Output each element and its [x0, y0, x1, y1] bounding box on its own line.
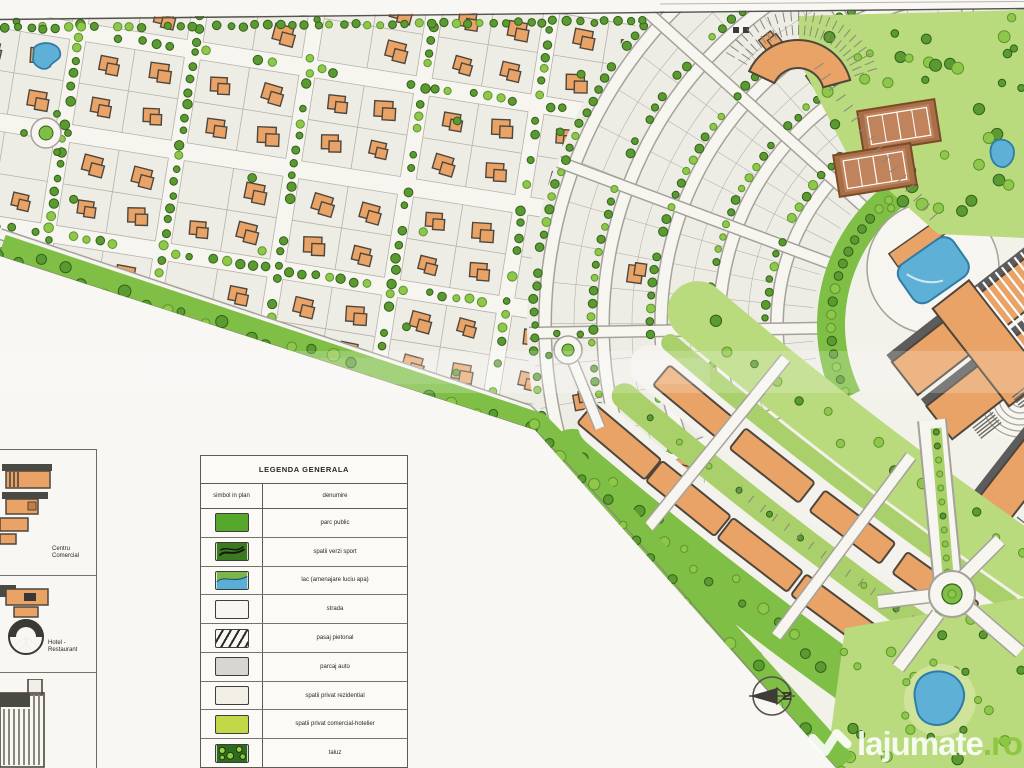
- legend-col-name: denumire: [263, 484, 407, 508]
- swatch-lac: [215, 571, 249, 590]
- legend-row-rezidential: spatii privat rezidential: [201, 682, 407, 711]
- legend-row-comercial: spatii privat comercial-hotelier: [201, 710, 407, 739]
- compass-north-label: N: [780, 691, 795, 700]
- panel-item-building: [0, 673, 96, 767]
- swatch-parcaj-auto: [215, 657, 249, 676]
- legend-title: LEGENDA GENERALA: [201, 456, 407, 484]
- legend-row-lac: lac (amenajare luciu apa): [201, 567, 407, 596]
- legend-row-strada: strada: [201, 595, 407, 624]
- swatch-strada: [215, 600, 249, 619]
- panel-item-hotel-restaurant: Hotel - Restaurant: [0, 576, 96, 673]
- hotel-restaurant-label: Hotel - Restaurant: [48, 640, 92, 654]
- legend-row-parc-public: parc public: [201, 509, 407, 538]
- legend-table: LEGENDA GENERALA simbol in plan denumire…: [200, 455, 408, 768]
- striped-building-drawing: [0, 679, 62, 768]
- hotel-restaurant-drawing: [0, 581, 62, 671]
- panel-item-centru-comercial: Centru Comercial: [0, 450, 96, 576]
- compass-icon: N: [742, 666, 802, 726]
- swatch-parc-public: [215, 513, 249, 532]
- legend-header: simbol in plan denumire: [201, 484, 407, 509]
- site-plan-scan: LEGENDA GENERALA simbol in plan denumire…: [0, 0, 1024, 768]
- legend-col-symbol: simbol in plan: [201, 484, 263, 508]
- legend-row-taluz: taluz: [201, 739, 407, 767]
- centru-comercial-label: Centru Comercial: [52, 546, 96, 560]
- swatch-privat-rezidential: [215, 686, 249, 705]
- swatch-pasaj-pietonal: [215, 629, 249, 648]
- legend-row-parcaj: parcaj auto: [201, 653, 407, 682]
- legend-row-pasaj: pasaj pietonal: [201, 624, 407, 653]
- swatch-privat-comercial: [215, 715, 249, 734]
- swatch-taluz: [215, 744, 249, 763]
- master-plan-map: [0, 0, 1024, 768]
- side-panel: Centru Comercial Hotel - Restaurant: [0, 449, 97, 768]
- swatch-verzi-sport: [215, 542, 249, 561]
- legend-row-verzi-sport: spatii verzi sport: [201, 538, 407, 567]
